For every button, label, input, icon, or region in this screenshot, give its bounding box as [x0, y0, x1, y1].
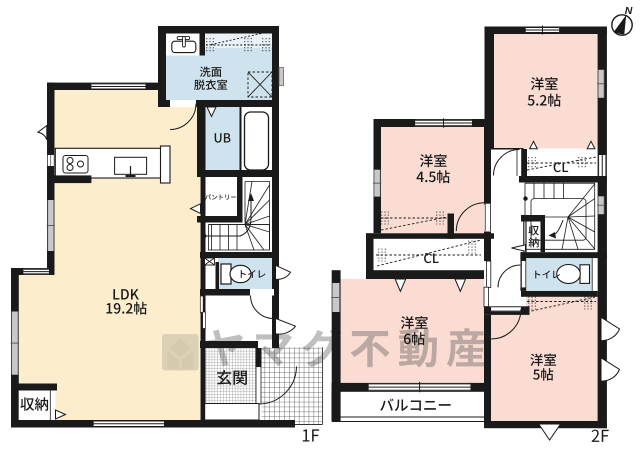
svg-text:N: N [625, 5, 633, 17]
